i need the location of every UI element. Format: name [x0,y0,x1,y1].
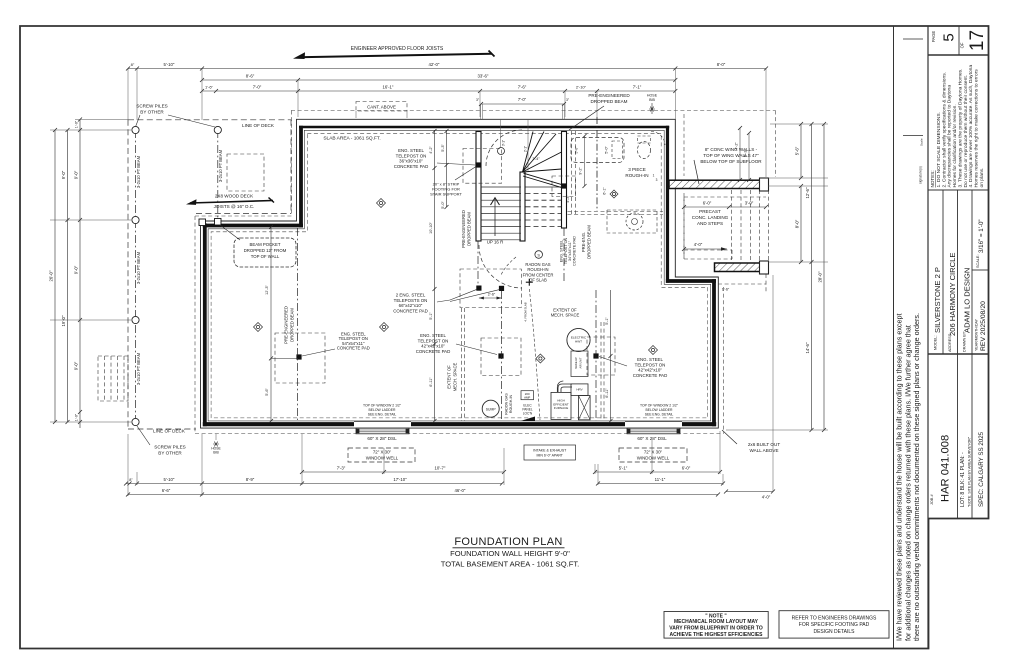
svg-text:MECH. SPACE: MECH. SPACE [453,363,458,392]
svg-text:TELEPOST ON: TELEPOST ON [418,338,449,343]
svg-text:4'-0": 4'-0" [762,495,771,500]
svg-text:46'-0": 46'-0" [455,488,466,493]
svg-text:CONCRETE PAD: CONCRETE PAD [394,164,429,169]
svg-text:FOUNDATION WALL HEIGHT 9'-0": FOUNDATION WALL HEIGHT 9'-0" [450,549,570,558]
svg-text:28'-0": 28'-0" [817,271,822,282]
svg-text:8": 8" [131,62,135,67]
svg-text:ENG. STEEL: ENG. STEEL [637,357,663,362]
svg-text:Any discrepancies shall be rep: Any discrepancies shall be reported to D… [947,85,953,188]
svg-text:SILVERSTONE 2 P: SILVERSTONE 2 P [933,267,942,333]
svg-text:SEE ENG. DETAIL: SEE ENG. DETAIL [645,413,674,417]
svg-text:TOP OF WALL: TOP OF WALL [251,254,280,259]
svg-text:LOC'N: LOC'N [523,412,533,416]
svg-text:5'-1": 5'-1" [619,466,628,471]
svg-text:42"x42"x10": 42"x42"x10" [421,344,445,349]
svg-text:8'-0": 8'-0" [794,219,799,228]
svg-text:Homes reserves the right to ma: Homes reserves the right to make correct… [973,69,979,188]
svg-text:UP 16 R: UP 16 R [487,240,504,245]
svg-text:DROPPED BEAM: DROPPED BEAM [590,99,627,104]
svg-text:ADAM LO DESIGN: ADAM LO DESIGN [963,268,972,333]
svg-text:12'-6": 12'-6" [805,187,810,198]
svg-text:SCREW PILES: SCREW PILES [136,104,167,109]
svg-text:DROPPED 12" FROM: DROPPED 12" FROM [244,248,287,253]
svg-text:206 HARMONY CIRCLE: 206 HARMONY CIRCLE [948,253,957,336]
svg-text:7'-6": 7'-6" [518,85,527,90]
svg-text:CONCRETE PAD: CONCRETE PAD [416,349,451,354]
svg-text:RADON GAS: RADON GAS [505,393,509,415]
svg-text:3: 3 [656,178,658,182]
svg-text:DROPPED BEAM: DROPPED BEAM [587,225,592,259]
svg-text:PRE-ENGINEERED: PRE-ENGINEERED [461,210,466,248]
svg-text:4'-0": 4'-0" [694,242,703,247]
svg-text:BEAM POCKET: BEAM POCKET [249,242,280,247]
svg-text:9'-0": 9'-0" [73,361,78,370]
svg-text:BIB: BIB [213,451,219,455]
svg-text:BELOW LADDER: BELOW LADDER [369,408,396,412]
svg-text:6'-11": 6'-11" [605,388,609,398]
svg-text:Homes for clarification and/or: Homes for clarification and/or revision. [952,104,958,187]
svg-text:FOR SPECIFIC FOOTING PAD: FOR SPECIFIC FOOTING PAD [799,622,870,628]
svg-text:5'-3": 5'-3" [743,149,747,157]
svg-text:DESIGN DETAILS: DESIGN DETAILS [813,629,855,635]
svg-text:SUMP: SUMP [486,407,497,411]
svg-text:SEE ENG. DETAIL: SEE ENG. DETAIL [368,413,397,417]
svg-text:PRECAST: PRECAST [699,209,721,214]
svg-text:3'-0": 3'-0" [745,201,754,206]
svg-text:INTAKE & EXHAUST: INTAKE & EXHAUST [533,449,567,453]
svg-text:6'-6": 6'-6" [162,488,171,493]
svg-text:TOP OF WING WALLS 47": TOP OF WING WALLS 47" [703,153,759,158]
svg-text:2 ENG. STEEL: 2 ENG. STEEL [396,293,426,298]
svg-text:5'-6": 5'-6" [265,388,269,396]
svg-text:3-2x10 PT BEAM: 3-2x10 PT BEAM [136,155,141,188]
svg-text:CONCRETE PAD: CONCRETE PAD [572,236,576,266]
svg-text:TELEPOSTS ON: TELEPOSTS ON [394,298,428,303]
svg-text:3/16" = 1'-0": 3/16" = 1'-0" [978,219,985,253]
svg-text:6'-11": 6'-11" [429,377,433,387]
svg-text:PRE-ENGINEERED: PRE-ENGINEERED [283,306,288,344]
svg-text:2'-6": 2'-6" [488,293,496,297]
svg-text:5'-10": 5'-10" [164,477,175,482]
svg-text:19'-0": 19'-0" [61,315,66,326]
svg-text:5'-0": 5'-0" [575,146,579,154]
svg-text:ENGINEER APPROVED FLOOR JOISTS: ENGINEER APPROVED FLOOR JOISTS [351,46,444,52]
svg-text:60" X 28" DSL: 60" X 28" DSL [367,436,397,441]
svg-text:MECH. SPACE: MECH. SPACE [551,313,580,318]
svg-text:1. DO NOT SCALE DIMENSIONS.: 1. DO NOT SCALE DIMENSIONS. [936,112,942,187]
svg-text:5'-6": 5'-6" [794,146,799,155]
svg-text:4'-3": 4'-3" [566,195,570,203]
svg-text:3 PIECE: 3 PIECE [628,167,646,172]
svg-text:OF: OF [960,42,965,48]
svg-text:9'-0": 9'-0" [73,170,78,179]
svg-text:TOP OF WINDOW 2 1/2": TOP OF WINDOW 2 1/2" [640,404,679,408]
svg-text:3-2x10 PT BEAM: 3-2x10 PT BEAM [218,149,223,182]
svg-text:HAR 041.008: HAR 041.008 [940,435,952,502]
svg-text:26'-0": 26'-0" [48,270,53,281]
svg-text:Scale: Scale [920,138,924,146]
svg-text:ACHIEVE THE HIGHEST EFFICIENCI: ACHIEVE THE HIGHEST EFFICIENCIES [669,632,763,638]
svg-text:TOTAL BASEMENT AREA - 1061 SQ.: TOTAL BASEMENT AREA - 1061 SQ.FT. [441,560,580,569]
svg-text:1: 1 [653,174,655,178]
svg-text:6'-1": 6'-1" [603,187,607,195]
svg-text:8'-9": 8'-9" [246,477,255,482]
svg-text:16'-1": 16'-1" [383,85,394,90]
svg-text:MECHANICAL ROOM LAYOUT MAY: MECHANICAL ROOM LAYOUT MAY [674,619,759,625]
svg-text:MIN 6'-0" APART: MIN 6'-0" APART [536,454,563,458]
svg-text:42'-0": 42'-0" [429,62,440,67]
svg-text:7'-1": 7'-1" [633,85,642,90]
svg-text:4. Drawings are never 100% acc: 4. Drawings are never 100% accurate. As … [968,65,974,188]
svg-text:DROPPED BEAM: DROPPED BEAM [289,308,294,342]
svg-text:CANT. ABOVE: CANT. ABOVE [367,104,396,109]
svg-text:WINDOW WELL: WINDOW WELL [637,456,670,461]
svg-text:7'-0": 7'-0" [518,97,527,102]
svg-text:5'-0": 5'-0" [605,146,609,154]
svg-text:6'-0": 6'-0" [703,201,712,206]
svg-text:REV 2025/08/20: REV 2025/08/20 [980,301,987,351]
svg-text:PAGE: PAGE [931,31,936,43]
svg-text:DRAWN BY:: DRAWN BY: [963,331,967,352]
svg-text:33'-6": 33'-6" [478,74,489,79]
svg-text:TELEPOST ON: TELEPOST ON [635,362,666,367]
svg-text:WALL ABOVE: WALL ABOVE [749,448,778,453]
svg-text:7'-3": 7'-3" [337,466,346,471]
svg-text:TOP OF WINDOW 2 1/2": TOP OF WINDOW 2 1/2" [363,404,402,408]
svg-text:TELEPOST ON: TELEPOST ON [396,153,427,158]
svg-text:BY OTHER: BY OTHER [158,451,182,456]
svg-text:CONC. LANDING: CONC. LANDING [692,215,729,220]
svg-text:BY OTHER: BY OTHER [140,110,164,115]
svg-text:AMP: AMP [524,395,530,399]
svg-text:there are no outstanding verba: there are no outstanding verbal commitme… [912,313,921,641]
svg-text:ENG. STEEL: ENG. STEEL [420,333,446,338]
svg-text:4. FROM SLAB: 4. FROM SLAB [524,302,528,321]
svg-text:HWT: HWT [575,340,582,344]
svg-text:LINE OF DECK: LINE OF DECK [153,429,186,434]
svg-text:6'-0": 6'-0" [682,466,691,471]
svg-text:AIR UNIT: AIR UNIT [579,357,583,369]
svg-text:8'-0": 8'-0" [717,62,726,67]
svg-text:2'-10": 2'-10" [576,85,587,90]
svg-text:I/We have reviewed these plans: I/We have reviewed these plans and under… [895,313,904,641]
svg-text:8" CONC WING WALLS -: 8" CONC WING WALLS - [705,147,758,152]
svg-text:1'-6": 1'-6" [722,288,730,292]
svg-text:1'-6": 1'-6" [205,85,214,90]
svg-text:BELOW LADDER: BELOW LADDER [646,408,673,412]
svg-text:SPEC: CALGARY SS 2025: SPEC: CALGARY SS 2025 [978,431,985,507]
svg-text:5'-1": 5'-1" [429,312,433,320]
svg-text:SCREW PILES: SCREW PILES [154,445,185,450]
svg-text:5'-1": 5'-1" [605,317,609,325]
svg-text:3'-1": 3'-1" [502,140,506,146]
svg-text:3-2x10 PT BEAM: 3-2x10 PT BEAM [136,251,141,284]
svg-text:10'-7": 10'-7" [435,466,446,471]
svg-text:LOT: 8 BLK: 41 PLAN: -: LOT: 8 BLK: 41 PLAN: - [960,452,966,507]
svg-text:DROPPED BEAM: DROPPED BEAM [467,212,472,246]
svg-text:17: 17 [967,30,988,51]
svg-text:11'-1": 11'-1" [655,477,666,482]
svg-text:JOISTS @ 16" O.C.: JOISTS @ 16" O.C. [214,204,255,209]
svg-text:MODEL:: MODEL: [934,335,938,350]
svg-text:72" X 30": 72" X 30" [644,450,663,455]
svg-text:LINE OF DECK: LINE OF DECK [242,123,275,128]
svg-text:NOTES:: NOTES: [930,170,935,187]
svg-text:10'-10": 10'-10" [429,221,433,233]
svg-text:CONCRETE PAD: CONCRETE PAD [393,308,428,313]
svg-text:1'-0": 1'-0" [74,120,78,128]
svg-text:FOUNDATION PLAN: FOUNDATION PLAN [454,536,562,548]
svg-text:4'-2": 4'-2" [734,142,738,150]
svg-text:PRE-ENG.: PRE-ENG. [581,232,586,252]
svg-text:5'-0": 5'-0" [441,201,445,209]
svg-text:42"x42"x10": 42"x42"x10" [638,368,662,373]
svg-text:ENG. STEEL: ENG. STEEL [398,148,424,153]
svg-text:14'-6": 14'-6" [805,342,810,353]
svg-text:5'-3": 5'-3" [441,144,445,152]
svg-text:12'-3": 12'-3" [265,285,269,295]
svg-text:REFER TO ENGINEERS DRAWINGS: REFER TO ENGINEERS DRAWINGS [792,615,877,621]
svg-text:CONCRETE PAD: CONCRETE PAD [337,346,370,351]
svg-text:SLAB AREA - 1061 SQ.FT.: SLAB AREA - 1061 SQ.FT. [323,136,380,142]
svg-text:3'-4": 3'-4" [532,157,540,161]
svg-text:9'-0": 9'-0" [61,170,66,179]
svg-text:9'-0": 9'-0" [73,265,78,274]
svg-text:FURNACE: FURNACE [554,406,569,410]
svg-text:72" X 30": 72" X 30" [373,450,392,455]
svg-text:PRE-ENGINEERED: PRE-ENGINEERED [588,93,630,98]
svg-text:S: S [537,253,540,257]
svg-text:for additional changes as note: for additional changes as noted on chang… [903,325,912,641]
svg-text:2X8 WOOD DECK: 2X8 WOOD DECK [215,194,254,199]
svg-text:CONCRETE PAD: CONCRETE PAD [633,373,668,378]
svg-text:"NOTE: SITE PLAN BY AREA SURVE: "NOTE: SITE PLAN BY AREA SURVEYOR" [968,436,972,507]
svg-text:signature(s): signature(s) [919,166,923,184]
svg-text:5'-10": 5'-10" [164,62,175,67]
svg-text:on plans.: on plans. [979,168,985,188]
svg-text:8'-6": 8'-6" [246,74,255,79]
svg-text:9'-2": 9'-2" [579,167,583,175]
svg-text:YEAR/MONTH/DAY: YEAR/MONTH/DAY [975,318,979,351]
svg-text:2. Contractor shall verify spe: 2. Contractor shall verify specification… [941,72,947,188]
svg-text:17'-10": 17'-10" [393,477,407,482]
svg-text:Do not use or reproduce them w: Do not use or reproduce them without the… [963,75,969,188]
svg-text:1'-0": 1'-0" [74,413,78,421]
svg-text:EXTENT OF: EXTENT OF [447,365,452,389]
svg-text:ROUGH-IN: ROUGH-IN [625,173,648,178]
svg-text:HRV: HRV [576,388,582,392]
svg-text:VARY FROM BLUEPRINT IN ORDER T: VARY FROM BLUEPRINT IN ORDER TO [669,626,763,632]
svg-text:2'-1": 2'-1" [524,146,528,152]
svg-text:MAKE-UP: MAKE-UP [574,357,578,369]
svg-text:4'-2": 4'-2" [429,146,433,154]
svg-text:ROUGH-IN: ROUGH-IN [509,395,513,414]
svg-text:3-2x10 PT BEAM: 3-2x10 PT BEAM [136,352,141,385]
svg-text:AND STEPS: AND STEPS [697,221,723,226]
svg-text:2x6 BUILT OUT: 2x6 BUILT OUT [748,442,780,447]
svg-text:SCALE:: SCALE: [976,254,980,268]
svg-text:7'-0": 7'-0" [253,85,262,90]
svg-text:3. These drawings are the prop: 3. These drawings are the property of Da… [957,69,963,188]
svg-text:JOB #: JOB # [930,494,934,505]
svg-text:BIB: BIB [649,98,655,102]
svg-text:WINDOW WELL: WINDOW WELL [366,456,399,461]
svg-text:66"x42"x10": 66"x42"x10" [399,303,423,308]
svg-text:36"x36"x10": 36"x36"x10" [399,159,423,164]
svg-text:BELOW TOP OF SUBFLOOR: BELOW TOP OF SUBFLOOR [700,159,762,164]
svg-text:5: 5 [941,33,958,41]
svg-text:60" X 28" DSL: 60" X 28" DSL [637,436,667,441]
